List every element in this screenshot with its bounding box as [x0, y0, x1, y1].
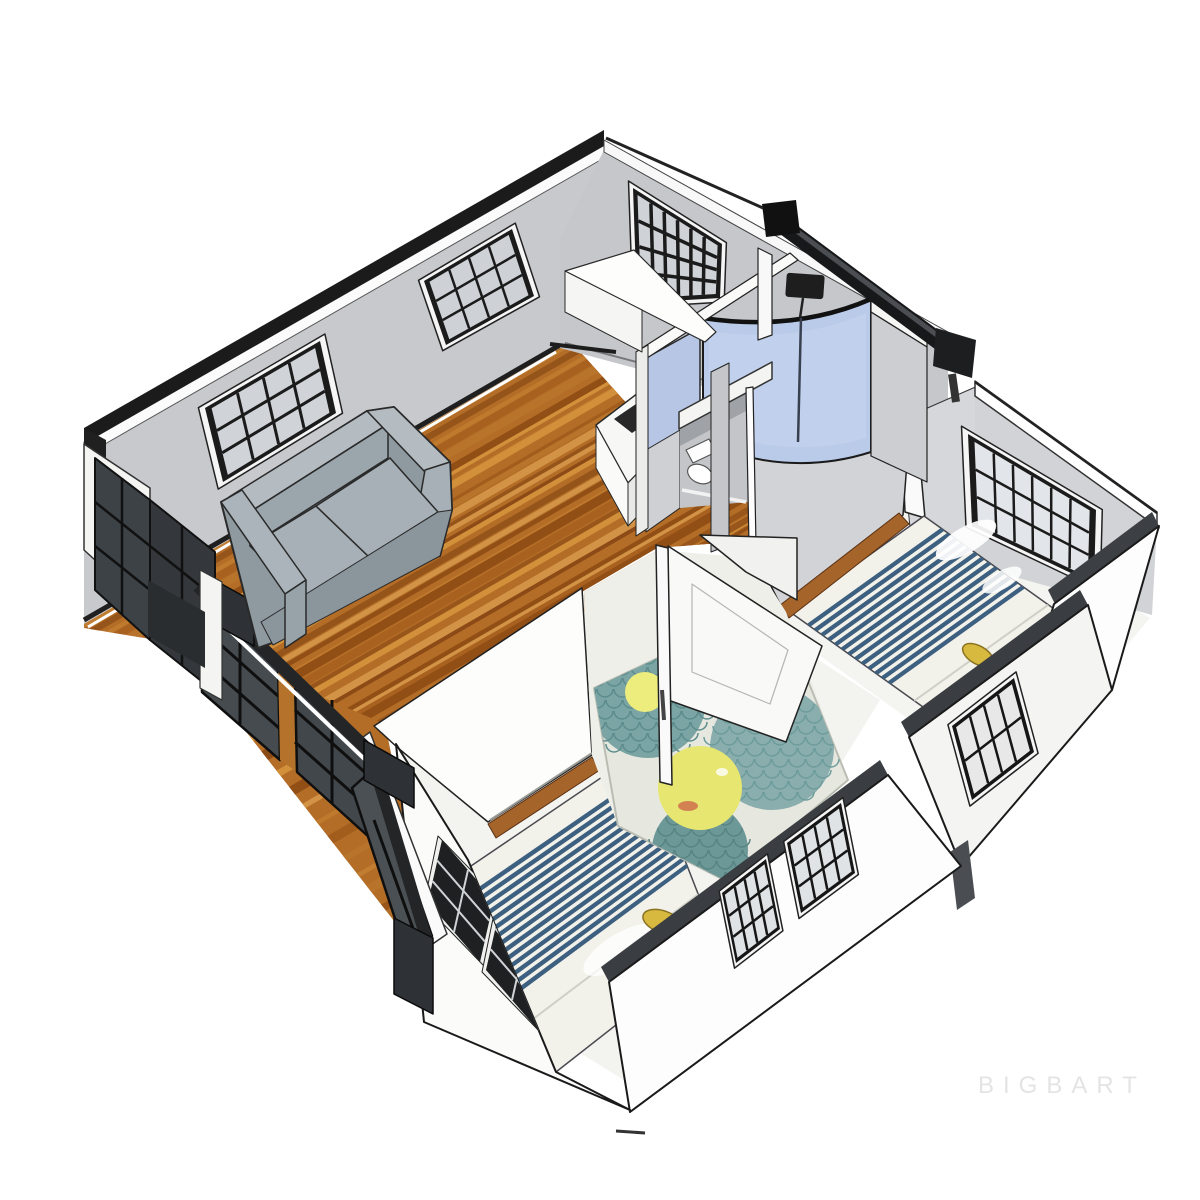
svg-text:BIGBART: BIGBART: [978, 1072, 1146, 1099]
